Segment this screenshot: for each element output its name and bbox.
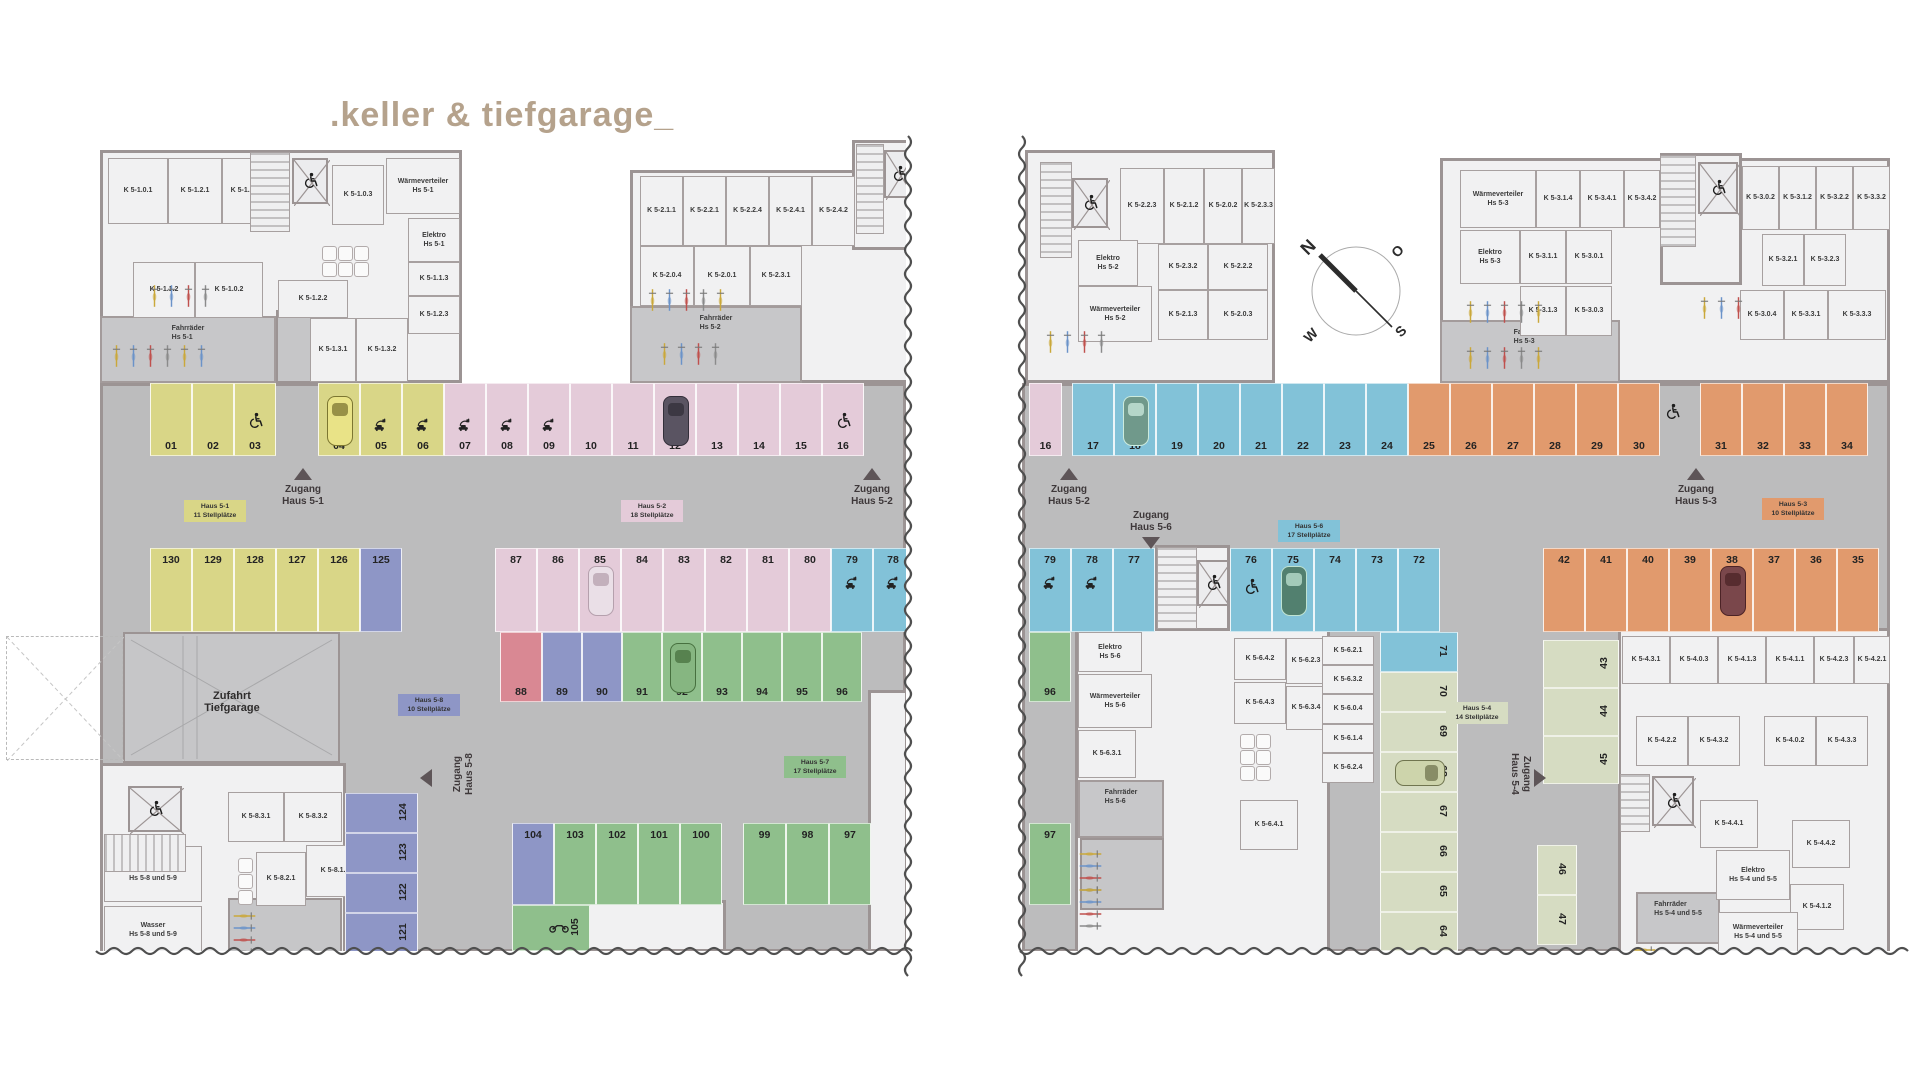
- parking-space-number: 15: [780, 440, 822, 452]
- bicycle-icon: [1079, 922, 1103, 931]
- storage-bin: [338, 262, 353, 277]
- capacity-badge: Haus 5-218 Stellplätze: [621, 500, 683, 522]
- room-right-26: K 5-3.3.1: [1784, 290, 1828, 340]
- ramp-label: Zufahrt Tiefgarage: [182, 690, 282, 714]
- room-label: K 5-1.3.1: [319, 345, 348, 354]
- bicycle-icon: [1079, 898, 1103, 907]
- room-label: K 5-6.3.2: [1334, 675, 1363, 684]
- access-label: Zugang Haus 5-4: [1508, 734, 1532, 814]
- parking-space-number: 79: [1029, 554, 1071, 566]
- room-right-30: K 5-6.3.1: [1078, 730, 1136, 778]
- room-left-3: K 5-1.0.3: [332, 165, 384, 225]
- room-label: K 5-2.1.2: [1170, 201, 1199, 210]
- parking-space-number: 28: [1534, 440, 1576, 452]
- wheelchair-icon: [834, 412, 852, 430]
- parking-space-number: 71: [1437, 640, 1449, 662]
- car-windshield: [675, 650, 691, 663]
- bicycle-icon: [233, 924, 257, 933]
- parking-space-number: 66: [1437, 840, 1449, 862]
- access-arrow-icon: [420, 769, 432, 787]
- parking-space-number: 90: [582, 686, 622, 698]
- parking-space-number: 100: [680, 829, 722, 841]
- badge-count: 10 Stellplätze: [407, 705, 450, 714]
- parking-space-number: 31: [1700, 440, 1742, 452]
- stairs-left-1: [856, 144, 884, 234]
- bike-room-label: Fahrräder Hs 5-6: [1105, 788, 1138, 806]
- room-label: Elektro Hs 5-3: [1478, 248, 1502, 266]
- parking-space-number: 128: [234, 554, 276, 566]
- stairs-left-2: [104, 834, 186, 872]
- room-label: K 5-4.2.2: [1648, 736, 1677, 745]
- parking-space-number: 84: [621, 554, 663, 566]
- parking-space-number: 02: [192, 440, 234, 452]
- capacity-badge: Haus 5-111 Stellplätze: [184, 500, 246, 522]
- parking-space-number: 73: [1356, 554, 1398, 566]
- ev-charger-icon: [415, 418, 430, 432]
- parking-space-number: 20: [1198, 440, 1240, 452]
- room-label: K 5-2.0.1: [708, 271, 737, 280]
- storage-bin: [1256, 766, 1271, 781]
- bike-room-right-2: Fahrräder Hs 5-4 und 5-5: [1636, 892, 1720, 944]
- room-label: K 5-3.0.1: [1575, 252, 1604, 261]
- stairs-right-0: [1040, 162, 1072, 258]
- room-right-33: K 5-6.2.3: [1286, 638, 1326, 684]
- parking-space-number: 16: [1029, 440, 1062, 452]
- room-left-24: K 5-8.2.1: [256, 852, 306, 906]
- room-label: K 5-6.2.3: [1292, 656, 1321, 665]
- access-arrow-icon: [863, 468, 881, 480]
- badge-house: Haus 5-1: [201, 502, 229, 511]
- car-icon: [1281, 566, 1307, 616]
- storage-bin: [322, 262, 337, 277]
- room-label: K 5-3.4.1: [1588, 194, 1617, 203]
- bicycle-icon: [1483, 346, 1492, 370]
- parking-space-number: 88: [500, 686, 542, 698]
- bicycle-icon: [716, 288, 725, 312]
- bicycle-icon: [1079, 886, 1103, 895]
- room-label: Elektro Hs 5-2: [1096, 254, 1120, 272]
- room-label: K 5-3.0.3: [1575, 306, 1604, 315]
- parking-space-number: 81: [747, 554, 789, 566]
- room-right-45: K 5-4.2.3: [1814, 636, 1854, 684]
- room-left-26: Wasser Hs 5-8 und 5-9: [104, 906, 202, 954]
- room-label: K 5-3.2.1: [1769, 255, 1798, 264]
- parking-space-number: 39: [1669, 554, 1711, 566]
- room-label: K 5-1.2.3: [420, 310, 449, 319]
- parking-space-number: 80: [789, 554, 831, 566]
- room-label: K 5-4.4.1: [1715, 819, 1744, 828]
- bicycle-icon: [1079, 862, 1103, 871]
- room-right-18: Elektro Hs 5-3: [1460, 230, 1520, 284]
- parking-space-number: 27: [1492, 440, 1534, 452]
- room-left-6: K 5-1.1.3: [408, 262, 460, 296]
- wheelchair-icon: [146, 800, 164, 818]
- bicycle-icon: [1717, 296, 1726, 320]
- storage-bin: [1240, 766, 1255, 781]
- access-arrow-icon: [1142, 537, 1160, 549]
- room-label: K 5-2.4.2: [819, 206, 848, 215]
- bicycle-icon: [129, 344, 138, 368]
- storage-bin: [1240, 750, 1255, 765]
- room-right-43: K 5-4.1.3: [1718, 636, 1766, 684]
- access-arrow-icon: [1687, 468, 1705, 480]
- bicycle-icon: [146, 344, 155, 368]
- access-label: Zugang Haus 5-6: [1111, 510, 1191, 534]
- room-left-1: K 5-1.2.1: [168, 158, 222, 224]
- room-left-10: K 5-1.2.2: [278, 280, 348, 318]
- bicycle-icon: [677, 342, 686, 366]
- parking-space-number: 98: [786, 829, 829, 841]
- room-label: K 5-4.2.1: [1858, 655, 1887, 664]
- room-right-14: K 5-3.0.2: [1742, 166, 1779, 230]
- room-right-35: K 5-6.2.1: [1322, 636, 1374, 665]
- car-windshield: [593, 573, 609, 586]
- room-right-54: K 5-4.1.2: [1790, 884, 1844, 930]
- capacity-badge: Haus 5-617 Stellplätze: [1278, 520, 1340, 542]
- storage-bin: [338, 246, 353, 261]
- storage-bin: [354, 262, 369, 277]
- parking-space-number: 103: [554, 829, 596, 841]
- parking-space-number: 126: [318, 554, 360, 566]
- parking-space-number: 79: [831, 554, 873, 566]
- bicycle-icon: [233, 936, 257, 945]
- parking-space-number: 33: [1784, 440, 1826, 452]
- parking-space-number: 99: [743, 829, 786, 841]
- room-right-2: K 5-2.0.2: [1204, 168, 1242, 244]
- bicycle-icon: [1466, 346, 1475, 370]
- room-label: K 5-1.0.2: [215, 285, 244, 294]
- room-right-13: K 5-3.4.2: [1624, 170, 1660, 228]
- room-label: K 5-3.3.2: [1857, 193, 1886, 202]
- badge-count: 17 Stellplätze: [1287, 531, 1330, 540]
- torn-edge-mask-0: [906, 90, 1022, 962]
- bicycle-icon: [197, 344, 206, 368]
- room-label: K 5-3.1.2: [1783, 193, 1812, 202]
- room-right-8: Elektro Hs 5-2: [1078, 240, 1138, 286]
- room-label: K 5-6.4.3: [1246, 698, 1275, 707]
- room-right-27: K 5-3.3.3: [1828, 290, 1886, 340]
- bicycle-icon: [180, 344, 189, 368]
- room-label: K 5-3.1.4: [1544, 194, 1573, 203]
- parking-space-number: 46: [1556, 858, 1568, 880]
- parking-space-number: 105: [569, 916, 581, 938]
- bicycle-icon: [1734, 296, 1743, 320]
- parking-space-number: 85: [579, 554, 621, 566]
- access-label: Zugang Haus 5-2: [832, 484, 912, 508]
- room-right-28: Elektro Hs 5-6: [1078, 632, 1142, 672]
- wheelchair-icon: [1204, 574, 1222, 592]
- room-right-3: K 5-2.3.3: [1242, 168, 1275, 244]
- parking-space-number: 11: [612, 440, 654, 452]
- room-label: K 5-2.2.3: [1128, 201, 1157, 210]
- bicycle-icon: [201, 284, 210, 308]
- room-label: K 5-4.1.2: [1803, 902, 1832, 911]
- room-label: Wasser Hs 5-8 und 5-9: [129, 921, 177, 939]
- bicycle-icon: [660, 342, 669, 366]
- bicycle-icon: [1500, 346, 1509, 370]
- parking-space-number: 35: [1837, 554, 1879, 566]
- bike-room-label: Fahrräder Hs 5-1: [172, 324, 205, 342]
- parking-space-number: 91: [622, 686, 662, 698]
- room-label: K 5-3.3.1: [1792, 310, 1821, 319]
- bicycle-icon: [682, 288, 691, 312]
- room-label: K 5-2.1.1: [647, 206, 676, 215]
- room-left-12: K 5-1.3.2: [356, 318, 408, 382]
- access-arrow-icon: [1534, 769, 1546, 787]
- parking-space-number: 45: [1598, 748, 1610, 770]
- room-label: K 5-1.0.3: [344, 190, 373, 199]
- badge-house: Haus 5-4: [1463, 704, 1491, 713]
- driveway-outline: [6, 636, 123, 760]
- parking-space-number: 29: [1576, 440, 1618, 452]
- ev-charger-icon: [1084, 576, 1099, 590]
- room-right-12: K 5-3.4.1: [1580, 170, 1624, 228]
- parking-space-number: 10: [570, 440, 612, 452]
- room-label: K 5-4.1.1: [1776, 655, 1805, 664]
- capacity-badge: Haus 5-717 Stellplätze: [784, 756, 846, 778]
- room-left-14: K 5-2.2.1: [683, 176, 726, 246]
- room-label: K 5-3.1.1: [1529, 252, 1558, 261]
- bicycle-icon: [699, 288, 708, 312]
- room-label: K 5-4.4.2: [1807, 839, 1836, 848]
- room-label: Elektro Hs 5-6: [1098, 643, 1122, 661]
- room-right-39: K 5-6.2.4: [1322, 753, 1374, 783]
- ev-charger-icon: [1042, 576, 1057, 590]
- room-right-25: K 5-3.0.4: [1740, 290, 1784, 340]
- bicycle-icon: [1079, 874, 1103, 883]
- badge-house: Haus 5-7: [801, 758, 829, 767]
- room-label: K 5-2.3.3: [1244, 201, 1273, 210]
- building-block-left-5: [868, 690, 908, 952]
- room-label: Wärmeverteiler Hs 5-1: [398, 177, 449, 195]
- parking-space-number: 30: [1618, 440, 1660, 452]
- access-label: Zugang Haus 5-3: [1656, 484, 1736, 508]
- wheelchair-icon: [301, 172, 319, 190]
- parking-space-number: 127: [276, 554, 318, 566]
- parking-space-number: 13: [696, 440, 738, 452]
- room-label: K 5-2.3.2: [1169, 262, 1198, 271]
- parking-space-number: 96: [822, 686, 862, 698]
- storage-bin: [238, 858, 253, 873]
- bicycle-icon: [665, 288, 674, 312]
- room-right-15: K 5-3.1.2: [1779, 166, 1816, 230]
- bicycle-icon: [163, 344, 172, 368]
- room-right-24: K 5-3.0.3: [1566, 286, 1612, 336]
- room-label: K 5-2.1.3: [1169, 310, 1198, 319]
- bicycle-icon: [694, 342, 703, 366]
- room-left-0: K 5-1.0.1: [108, 158, 168, 224]
- room-label: Elektro Hs 5-4 und 5-5: [1729, 866, 1777, 884]
- parking-space-number: 64: [1437, 920, 1449, 942]
- room-right-36: K 5-6.3.2: [1322, 665, 1374, 694]
- room-label: K 5-2.0.4: [653, 271, 682, 280]
- badge-count: 17 Stellplätze: [793, 767, 836, 776]
- parking-space-number: 24: [1366, 440, 1408, 452]
- room-right-11: K 5-3.1.4: [1536, 170, 1580, 228]
- bicycle-icon: [1517, 346, 1526, 370]
- room-label: K 5-8.2.1: [267, 874, 296, 883]
- room-label: K 5-8.3.1: [242, 812, 271, 821]
- parking-space-number: 01: [150, 440, 192, 452]
- parking-space-number: 32: [1742, 440, 1784, 452]
- parking-space-number: 09: [528, 440, 570, 452]
- bicycle-icon: [1534, 300, 1543, 324]
- room-label: K 5-1.2.2: [299, 294, 328, 303]
- ev-charger-icon: [373, 418, 388, 432]
- room-label: Wärmeverteiler Hs 5-3: [1473, 190, 1524, 208]
- wheelchair-icon: [246, 412, 264, 430]
- room-label: K 5-2.4.1: [776, 206, 805, 215]
- room-label: K 5-1.0.1: [124, 186, 153, 195]
- parking-space-number: 37: [1753, 554, 1795, 566]
- parking-space-number: 96: [1029, 686, 1071, 698]
- parking-space-number: 125: [360, 554, 402, 566]
- parking-space-number: 95: [782, 686, 822, 698]
- parking-space-number: 34: [1826, 440, 1868, 452]
- parking-space-number: 36: [1795, 554, 1837, 566]
- room-label: K 5-3.2.3: [1811, 255, 1840, 264]
- badge-house: Haus 5-6: [1295, 522, 1323, 531]
- room-left-22: K 5-8.3.2: [284, 792, 342, 842]
- badge-count: 14 Stellplätze: [1455, 713, 1498, 722]
- room-left-13: K 5-2.1.1: [640, 176, 683, 246]
- parking-space-number: 72: [1398, 554, 1440, 566]
- parking-space-number: 23: [1324, 440, 1366, 452]
- room-label: K 5-2.0.3: [1224, 310, 1253, 319]
- bicycle-icon: [150, 284, 159, 308]
- room-right-51: K 5-4.4.1: [1700, 800, 1758, 848]
- room-right-46: K 5-4.2.1: [1854, 636, 1890, 684]
- room-left-4: Wärmeverteiler Hs 5-1: [386, 158, 460, 214]
- bicycle-icon: [1097, 330, 1106, 354]
- room-label: K 5-3.0.4: [1748, 310, 1777, 319]
- parking-space-number: 26: [1450, 440, 1492, 452]
- room-left-7: K 5-1.2.3: [408, 296, 460, 334]
- room-label: Wärmeverteiler Hs 5-2: [1090, 305, 1141, 323]
- bicycle-icon: [1466, 300, 1475, 324]
- wheelchair-icon: [1242, 578, 1260, 596]
- room-label: K 5-3.2.2: [1820, 193, 1849, 202]
- plan-canvas: Zufahrt TiefgarageFahrräder Hs 5-1Fahrrä…: [0, 0, 1920, 1080]
- room-label: K 5-4.2.3: [1820, 655, 1849, 664]
- room-label: K 5-2.2.1: [690, 206, 719, 215]
- room-label: K 5-4.0.2: [1776, 736, 1805, 745]
- room-right-20: K 5-3.0.1: [1566, 230, 1612, 284]
- room-right-37: K 5-6.0.4: [1322, 694, 1374, 724]
- room-label: K 5-2.2.4: [733, 206, 762, 215]
- bicycle-icon: [648, 288, 657, 312]
- ev-charger-icon: [541, 418, 556, 432]
- room-right-55: Wärmeverteiler Hs 5-4 und 5-5: [1718, 912, 1798, 952]
- room-label: K 5-6.4.2: [1246, 654, 1275, 663]
- parking-space-number: 05: [360, 440, 402, 452]
- parking-space-number: 129: [192, 554, 234, 566]
- room-right-47: K 5-4.2.2: [1636, 716, 1688, 766]
- car-icon: [1720, 566, 1746, 616]
- room-label: K 5-3.3.3: [1843, 310, 1872, 319]
- bicycle-icon: [1046, 330, 1055, 354]
- storage-bin: [322, 246, 337, 261]
- room-label: K 5-4.1.3: [1728, 655, 1757, 664]
- room-right-50: K 5-4.3.3: [1816, 716, 1868, 766]
- parking-space-number: 104: [512, 829, 554, 841]
- badge-house: Haus 5-8: [415, 696, 443, 705]
- car-windshield: [1425, 765, 1438, 781]
- parking-space-number: 21: [1240, 440, 1282, 452]
- parking-space-number: 41: [1585, 554, 1627, 566]
- access-arrow-icon: [294, 468, 312, 480]
- room-label: Wärmeverteiler Hs 5-4 und 5-5: [1733, 923, 1784, 941]
- room-label: K 5-6.2.4: [1334, 763, 1363, 772]
- parking-space-number: 42: [1543, 554, 1585, 566]
- room-label: K 5-6.0.4: [1334, 704, 1363, 713]
- bicycle-icon: [1079, 850, 1103, 859]
- room-right-42: K 5-4.0.3: [1670, 636, 1718, 684]
- capacity-badge: Haus 5-310 Stellplätze: [1762, 498, 1824, 520]
- bicycle-icon: [1483, 300, 1492, 324]
- car-windshield: [668, 403, 684, 416]
- parking-space-number: 16: [822, 440, 864, 452]
- bicycle-icon: [167, 284, 176, 308]
- room-label: K 5-6.4.1: [1255, 820, 1284, 829]
- parking-space-number: 38: [1711, 554, 1753, 566]
- bicycle-icon: [1700, 296, 1709, 320]
- room-label: K 5-1.3.2: [368, 345, 397, 354]
- bicycle-icon: [184, 284, 193, 308]
- parking-space-number: 83: [663, 554, 705, 566]
- parking-space-number: 94: [742, 686, 782, 698]
- parking-space-number: 74: [1314, 554, 1356, 566]
- parking-space-number: 86: [537, 554, 579, 566]
- parking-space-number: 97: [1029, 829, 1071, 841]
- building-block-left-4: [586, 900, 726, 952]
- room-right-4: K 5-2.3.2: [1158, 244, 1208, 290]
- room-label: K 5-3.0.2: [1746, 193, 1775, 202]
- ev-charger-icon: [499, 418, 514, 432]
- parking-space-number: 25: [1408, 440, 1450, 452]
- car-icon: [1395, 760, 1445, 786]
- car-icon: [588, 566, 614, 616]
- room-right-29: Wärmeverteiler Hs 5-6: [1078, 674, 1152, 728]
- bicycle-icon: [1079, 910, 1103, 919]
- parking-space-number: 14: [738, 440, 780, 452]
- wheelchair-icon: [1709, 179, 1727, 197]
- room-right-53: Elektro Hs 5-4 und 5-5: [1716, 850, 1790, 900]
- parking-space-number: 121: [397, 921, 409, 943]
- stairs-right-1: [1660, 155, 1696, 247]
- room-right-17: K 5-3.3.2: [1853, 166, 1890, 230]
- car-windshield: [1725, 573, 1741, 586]
- room-right-41: K 5-4.3.1: [1622, 636, 1670, 684]
- parking-space-number: 93: [702, 686, 742, 698]
- room-left-20: K 5-2.3.1: [750, 246, 802, 306]
- parking-space-number: 82: [705, 554, 747, 566]
- room-right-34: K 5-6.3.4: [1286, 686, 1326, 730]
- room-right-21: K 5-3.2.1: [1762, 234, 1804, 286]
- parking-space-number: 87: [495, 554, 537, 566]
- room-right-49: K 5-4.0.2: [1764, 716, 1816, 766]
- bicycle-icon: [711, 342, 720, 366]
- parking-space-number: 102: [596, 829, 638, 841]
- room-right-38: K 5-6.1.4: [1322, 724, 1374, 753]
- bike-room-right-1: Fahrräder Hs 5-6: [1078, 780, 1164, 838]
- room-right-48: K 5-4.3.2: [1688, 716, 1740, 766]
- parking-space-number: 122: [397, 881, 409, 903]
- torn-edge-mask-2: [1014, 951, 1900, 1080]
- room-right-6: K 5-2.1.3: [1158, 290, 1208, 340]
- car-icon: [1123, 396, 1149, 446]
- badge-count: 10 Stellplätze: [1771, 509, 1814, 518]
